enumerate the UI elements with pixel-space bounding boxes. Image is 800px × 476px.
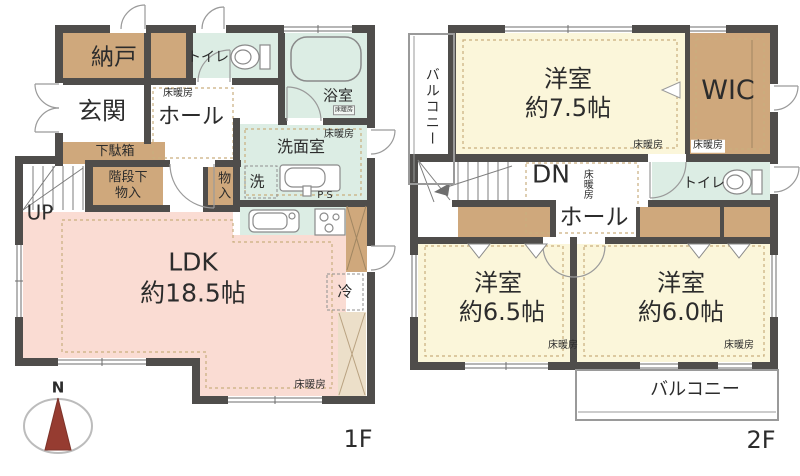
floor1-label: 1F [343, 424, 372, 454]
compass-needle [45, 398, 71, 450]
window [770, 255, 778, 317]
window [690, 25, 726, 33]
room-label-toilet-1f: トイレ [187, 49, 229, 67]
compass-n-label: N [52, 379, 65, 398]
stairs-2f [418, 160, 512, 202]
toilet-icon-2f [723, 170, 762, 194]
room-label-ldk: LDK [168, 246, 218, 277]
room-label-hall-1f: ホール [158, 103, 224, 131]
room-label-hall-2f: ホール [560, 204, 629, 233]
hall-closet [151, 30, 187, 80]
floor-plan: 納戸 玄関 トイレ 浴室 床暖房 床暖房 ホール 下駄箱 階段下 物入 UP 物… [0, 0, 800, 476]
room-label-60: 洋室 [657, 268, 705, 298]
window [58, 358, 146, 366]
room-label-75: 洋室 [544, 64, 592, 94]
toilet-icon-1f [231, 45, 270, 69]
room-size-75: 約7.5帖 [525, 93, 611, 123]
shoe-cabinet-label: 下駄箱 [95, 144, 134, 160]
wic-heating-label: 床暖房 [691, 140, 725, 153]
room-label-washroom: 洗面室 [277, 137, 325, 157]
room-label-65: 洋室 [474, 268, 522, 298]
window [284, 25, 352, 33]
hall2-heating-label: 床暖房 [580, 169, 593, 199]
closet-60b [724, 207, 772, 237]
closet-60a [640, 207, 720, 237]
up-label: UP [27, 201, 54, 226]
bath-sub-label: 床暖房 [333, 105, 355, 115]
room-label-bath: 浴室 [323, 87, 353, 106]
room-label-genkan: 玄関 [78, 96, 126, 126]
room65-heating-label: 床暖房 [548, 340, 578, 353]
stove-icon [315, 209, 345, 235]
window [505, 25, 632, 33]
compass [24, 398, 92, 453]
closet-label-1f: 物入 [214, 171, 230, 201]
window [228, 396, 322, 404]
room75-heating-label: 床暖房 [633, 140, 663, 153]
balcony-left-label: バルコニー [422, 67, 440, 147]
room-size-65: 約6.5帖 [459, 297, 545, 327]
dn-label: DN [532, 158, 570, 189]
kitchen-sink-icon [249, 210, 299, 232]
window [410, 255, 418, 317]
fridge-label: 冷 [337, 283, 352, 302]
ps-label: P S [317, 190, 333, 203]
window [718, 362, 752, 370]
room-size-60: 約6.0帖 [638, 297, 724, 327]
floor2-label: 2F [746, 425, 775, 455]
room-label-toilet-2f: トイレ [683, 175, 725, 193]
washroom-heating-label: 床暖房 [324, 129, 354, 142]
under-stair-storage-label: 階段下 物入 [108, 170, 147, 203]
room-label-nando: 納戸 [91, 44, 137, 73]
window [465, 362, 548, 370]
balcony-bottom-label: バルコニー [650, 379, 740, 402]
ldk-heating-label: 床暖房 [294, 378, 326, 391]
ldk-size-label: 約18.5帖 [140, 277, 246, 308]
washer-label: 洗 [249, 173, 264, 192]
room60-heating-label: 床暖房 [724, 340, 754, 353]
window [640, 362, 678, 370]
room-label-wic: WIC [701, 74, 755, 108]
hall-heating-label-1f: 床暖房 [163, 88, 193, 101]
room-bath [284, 30, 368, 120]
window [15, 245, 23, 317]
